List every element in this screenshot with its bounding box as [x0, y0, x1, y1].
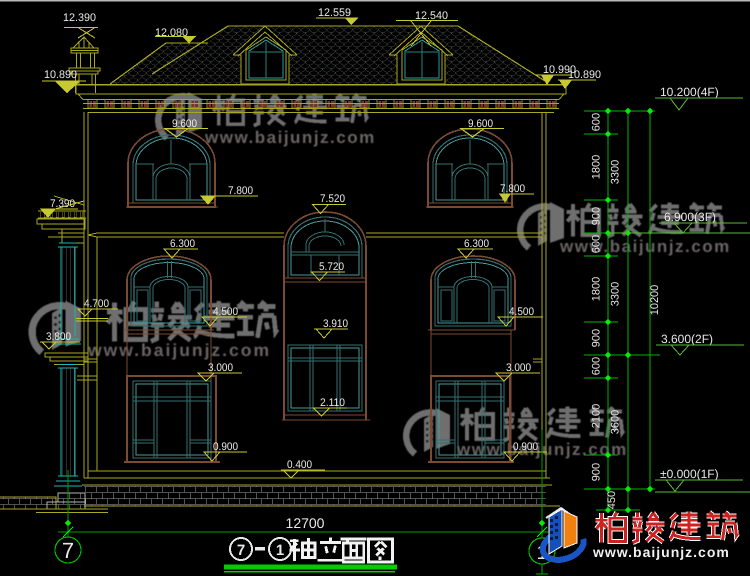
- svg-text:900: 900: [591, 329, 603, 347]
- svg-text:1: 1: [276, 542, 284, 559]
- svg-text:6.300: 6.300: [170, 238, 195, 250]
- svg-text:0.900: 0.900: [513, 441, 538, 453]
- svg-text:1800: 1800: [591, 277, 603, 301]
- svg-text:600: 600: [591, 357, 603, 375]
- svg-text:600: 600: [591, 113, 603, 131]
- svg-text:3.800: 3.800: [46, 331, 71, 343]
- svg-text:2100: 2100: [591, 404, 603, 428]
- svg-text:7: 7: [237, 542, 245, 559]
- svg-text:450: 450: [606, 491, 618, 509]
- svg-text:1800: 1800: [591, 155, 603, 179]
- svg-text:7.800: 7.800: [228, 185, 253, 197]
- svg-text:4.700: 4.700: [84, 298, 109, 310]
- svg-text:www.baijunjz.com: www.baijunjz.com: [87, 340, 271, 360]
- svg-text:7: 7: [62, 538, 74, 563]
- svg-text:3.000: 3.000: [506, 362, 531, 374]
- svg-text:600: 600: [591, 235, 603, 253]
- svg-text:7.800: 7.800: [500, 183, 525, 195]
- svg-text:±0.000(1F): ±0.000(1F): [660, 467, 719, 481]
- svg-text:4.500: 4.500: [509, 306, 534, 318]
- svg-text:12700: 12700: [286, 515, 325, 531]
- svg-text:www.baijunjz.com: www.baijunjz.com: [592, 544, 730, 560]
- svg-text:www.baijunjz.com: www.baijunjz.com: [559, 237, 731, 256]
- svg-text:7.520: 7.520: [320, 193, 345, 205]
- svg-text:900: 900: [591, 207, 603, 225]
- svg-text:3.910: 3.910: [323, 318, 348, 330]
- svg-text:3300: 3300: [610, 282, 622, 306]
- svg-text:3600: 3600: [610, 410, 622, 434]
- svg-text:3.000: 3.000: [208, 362, 233, 374]
- svg-text:2.110: 2.110: [320, 397, 345, 409]
- svg-text:6.300: 6.300: [464, 238, 489, 250]
- svg-text:12.559: 12.559: [318, 7, 351, 19]
- svg-text:10.890: 10.890: [568, 69, 601, 81]
- svg-text:10200: 10200: [649, 285, 661, 316]
- svg-text:3.600(2F): 3.600(2F): [661, 332, 713, 346]
- svg-text:0.400: 0.400: [287, 459, 312, 471]
- svg-text:10.200(4F): 10.200(4F): [660, 85, 719, 99]
- svg-text:10.890: 10.890: [44, 69, 77, 81]
- svg-text:12.390: 12.390: [63, 12, 96, 24]
- svg-text:6.900(3F): 6.900(3F): [664, 210, 716, 224]
- svg-text:5.720: 5.720: [319, 261, 344, 273]
- svg-text:900: 900: [591, 463, 603, 481]
- svg-text:0.900: 0.900: [213, 441, 238, 453]
- svg-text:4.500: 4.500: [213, 306, 238, 318]
- svg-text:3300: 3300: [610, 160, 622, 184]
- svg-text:www.baijunjz.com: www.baijunjz.com: [204, 128, 376, 147]
